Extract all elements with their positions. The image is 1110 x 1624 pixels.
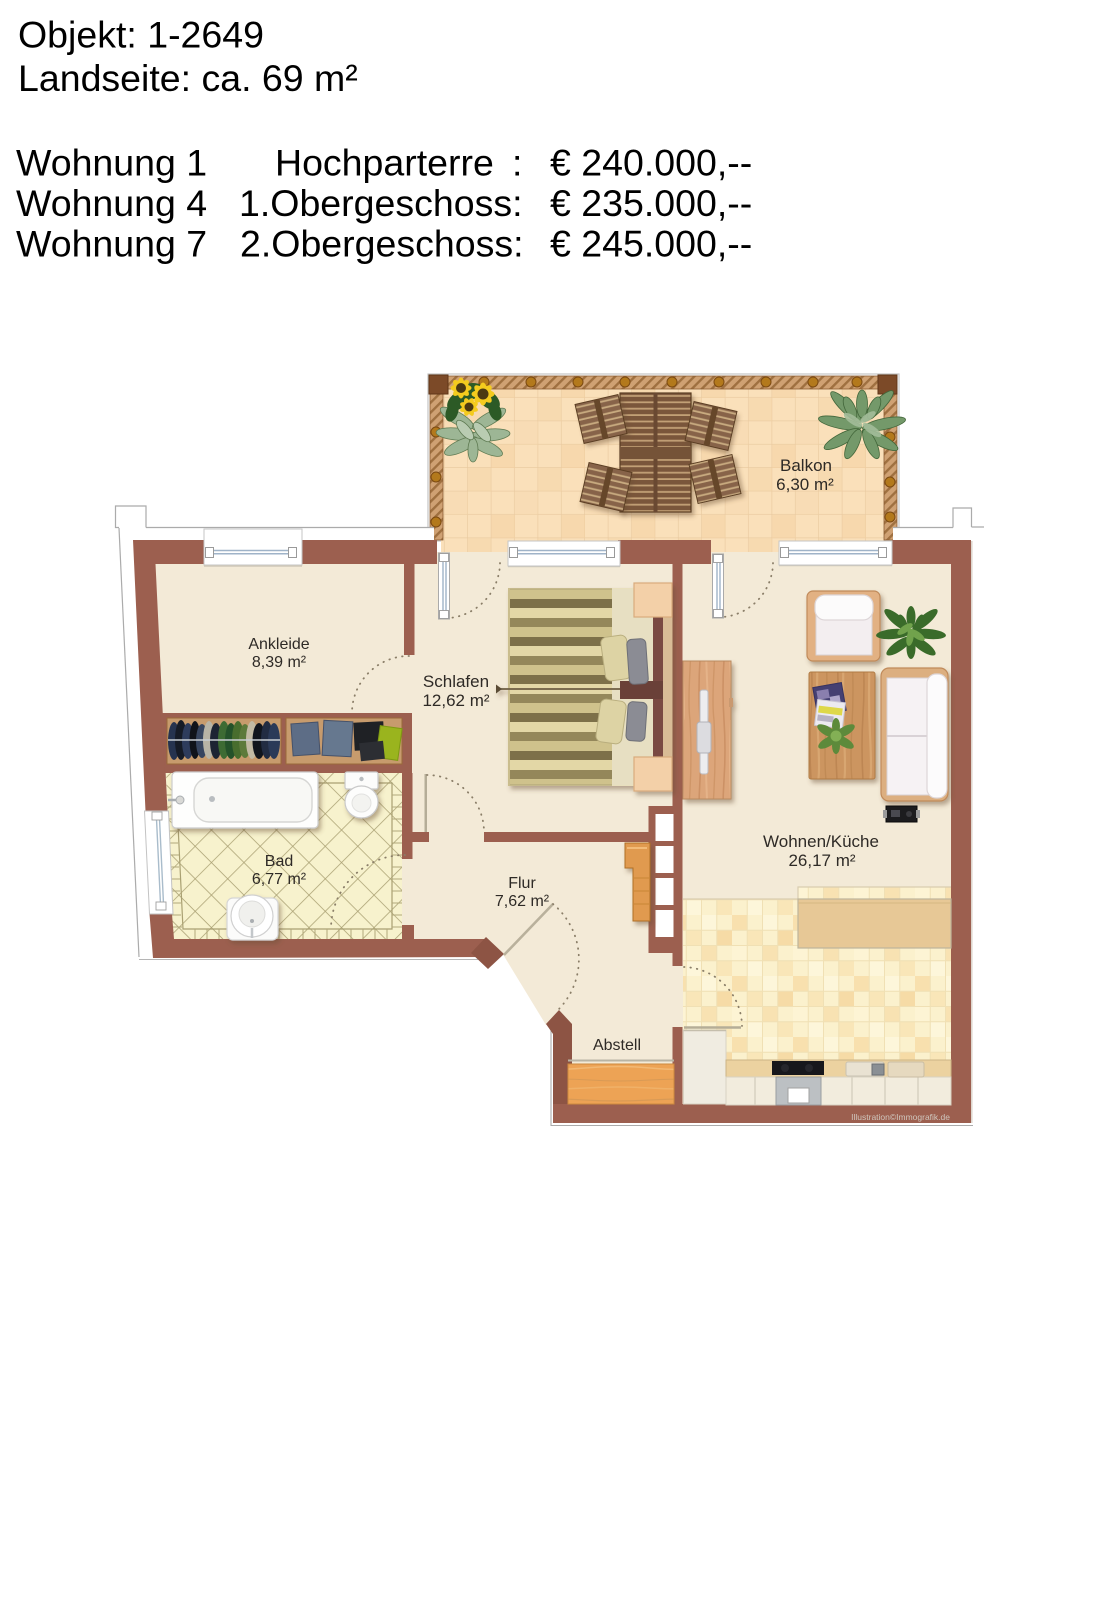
svg-text:7,62 m²: 7,62 m²	[495, 893, 550, 910]
svg-text:Hochparterre: Hochparterre	[275, 142, 494, 184]
svg-text:1.Obergeschoss:: 1.Obergeschoss:	[239, 182, 522, 224]
svg-text:2.Obergeschoss:: 2.Obergeschoss:	[240, 223, 523, 265]
svg-text:6,30 m²: 6,30 m²	[776, 475, 834, 494]
svg-text:Bad: Bad	[265, 853, 293, 870]
svg-text:8,39 m²: 8,39 m²	[252, 654, 307, 671]
svg-text:Wohnung 4: Wohnung 4	[16, 182, 207, 224]
svg-text:Schlafen: Schlafen	[423, 672, 489, 691]
svg-text:Balkon: Balkon	[780, 456, 832, 475]
svg-text:12,62 m²: 12,62 m²	[422, 691, 489, 710]
svg-text:€ 245.000,--: € 245.000,--	[550, 223, 752, 265]
svg-text:Objekt: 1-2649: Objekt: 1-2649	[18, 14, 264, 56]
svg-text:€ 235.000,--: € 235.000,--	[550, 182, 752, 224]
svg-text:Ankleide: Ankleide	[248, 636, 309, 653]
svg-text:26,17 m²: 26,17 m²	[788, 851, 855, 870]
svg-text:Flur: Flur	[508, 875, 536, 892]
svg-text:Wohnung 1: Wohnung 1	[16, 142, 207, 184]
svg-text:Abstell: Abstell	[593, 1037, 641, 1054]
svg-text:Landseite: ca. 69 m²: Landseite: ca. 69 m²	[18, 57, 358, 99]
svg-text:Wohnung 7: Wohnung 7	[16, 223, 207, 265]
svg-text:Illustration©Immografik.de: Illustration©Immografik.de	[851, 1112, 950, 1122]
svg-text:€ 240.000,--: € 240.000,--	[550, 142, 752, 184]
svg-text:Wohnen/Küche: Wohnen/Küche	[763, 832, 879, 851]
svg-text:6,77 m²: 6,77 m²	[252, 871, 307, 888]
svg-text::: :	[512, 142, 522, 184]
